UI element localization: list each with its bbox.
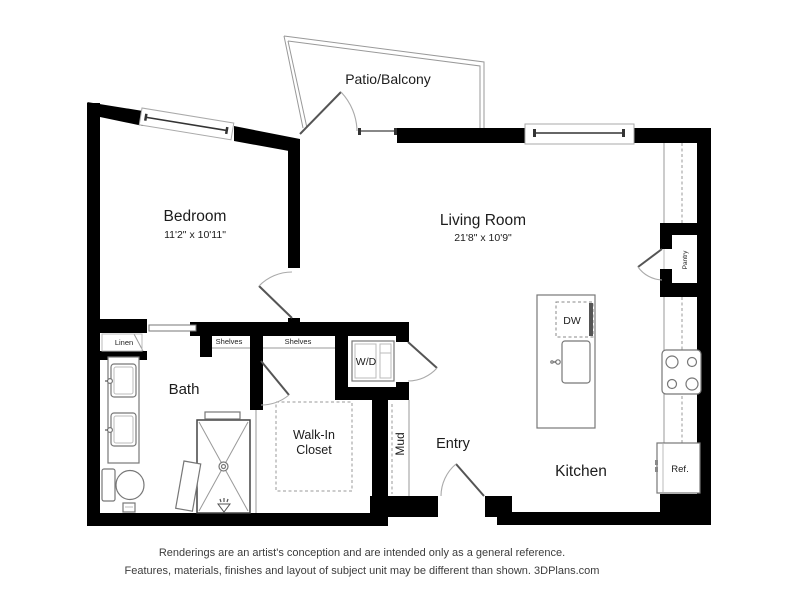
wall-bottom-left <box>87 513 388 526</box>
patio-door <box>300 92 397 135</box>
wall-pantry-stub-top <box>660 235 672 249</box>
dishwasher-handle <box>589 303 593 336</box>
bedroom-label: Bedroom <box>164 208 227 225</box>
kitchen-label: Kitchen <box>555 463 607 480</box>
shelves-label-left: Shelves <box>216 337 243 346</box>
bedroom-dims: 11'2" x 10'11" <box>164 229 226 241</box>
bath-pocket-door <box>149 325 196 331</box>
pantry-door <box>638 249 662 280</box>
refrigerator-label: Ref. <box>671 464 688 475</box>
shower <box>197 412 250 513</box>
stove <box>662 350 701 394</box>
footer-disclaimer-line2: Features, materials, finishes and layout… <box>125 565 600 577</box>
wall-entry-left <box>370 496 438 517</box>
patio-label: Patio/Balcony <box>345 71 431 87</box>
living-room-label: Living Room <box>440 212 526 229</box>
walk-in-label-line1: Walk-In <box>293 428 335 442</box>
wall-bath-closet-divider <box>250 336 263 410</box>
wall-bedroom-bottom <box>87 319 147 333</box>
wall-wd-right-stub-bottom <box>396 382 409 400</box>
wall-middle-horizontal <box>190 322 409 336</box>
wall-pantry-bottom <box>660 283 697 297</box>
walk-in-closet-door <box>261 361 289 405</box>
bedroom-door <box>259 272 292 318</box>
washer-dryer-label: W/D <box>356 356 377 368</box>
wall-pantry-top <box>660 223 697 235</box>
pantry-label: Pantry <box>682 250 689 270</box>
wall-left <box>87 103 100 526</box>
living-room-dims: 21'8" x 10'9" <box>454 232 512 244</box>
floor-plan-svg: Patio/Balcony Bedroom 11'2" x 10'11" Liv… <box>0 0 800 600</box>
washer-dryer-door <box>408 342 437 381</box>
bath-vanity <box>105 357 139 463</box>
mud-label: Mud <box>393 432 407 455</box>
bedroom-window <box>139 108 234 140</box>
bath-label: Bath <box>169 381 200 398</box>
floor-plan-page: Patio/Balcony Bedroom 11'2" x 10'11" Liv… <box>0 0 800 600</box>
footer-disclaimer-line1: Renderings are an artist's conception an… <box>159 547 565 559</box>
shower-threshold <box>205 412 240 419</box>
shelves-label-right: Shelves <box>285 337 312 346</box>
wall-bedroom-right <box>288 139 300 268</box>
wall-pantry-stub-bottom <box>660 269 672 283</box>
dishwasher-label: DW <box>563 315 581 327</box>
living-room-window <box>525 124 634 144</box>
wall-shelves-stub <box>200 336 212 357</box>
linen-label: Linen <box>115 338 133 347</box>
entry-door <box>441 464 484 496</box>
wall-kitchen-corner <box>660 494 711 514</box>
wall-wd-right-stub-top <box>396 336 409 342</box>
walls <box>87 102 711 526</box>
walk-in-label-line2: Closet <box>296 443 332 457</box>
entry-label: Entry <box>436 436 471 452</box>
toilet <box>102 469 144 512</box>
